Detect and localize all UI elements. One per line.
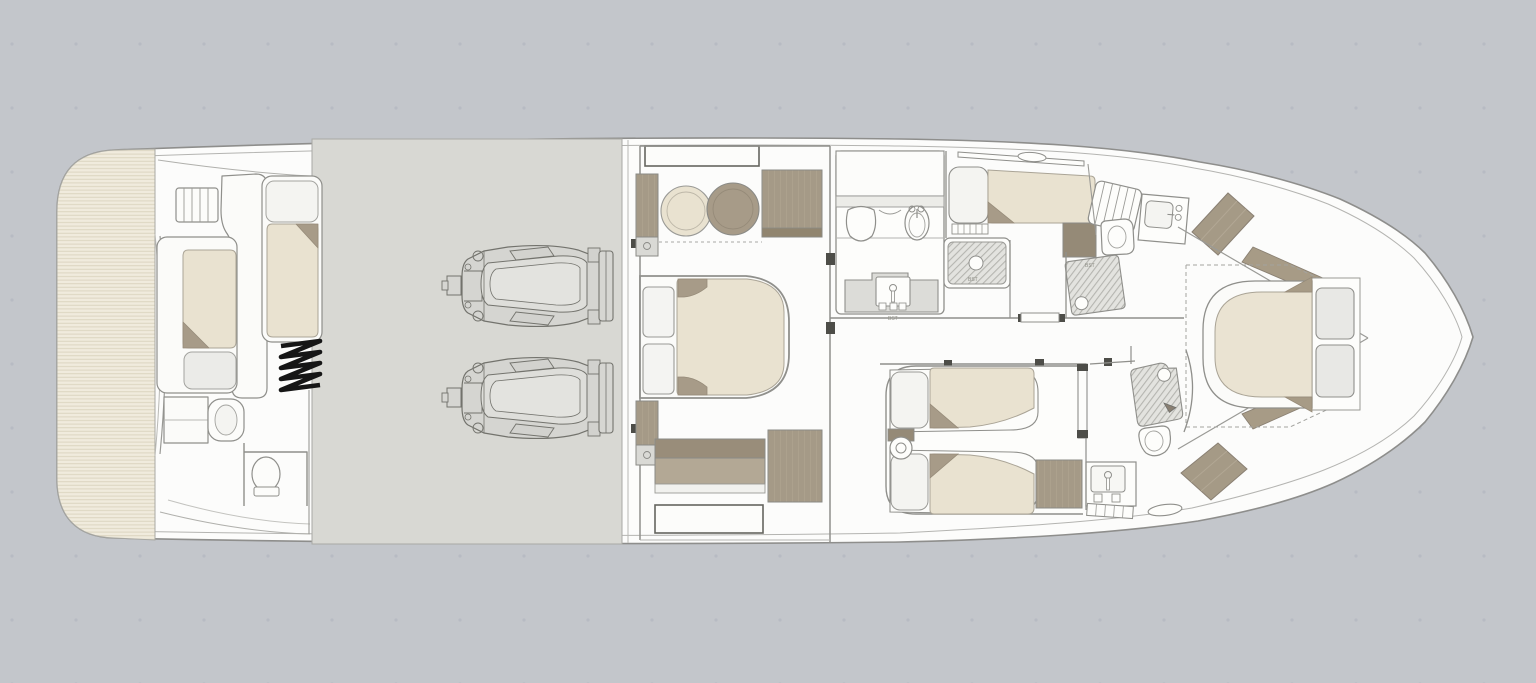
svg-text:BST: BST	[968, 277, 978, 283]
svg-text:BST: BST	[888, 316, 898, 322]
svg-text:BST: BST	[1085, 263, 1095, 269]
